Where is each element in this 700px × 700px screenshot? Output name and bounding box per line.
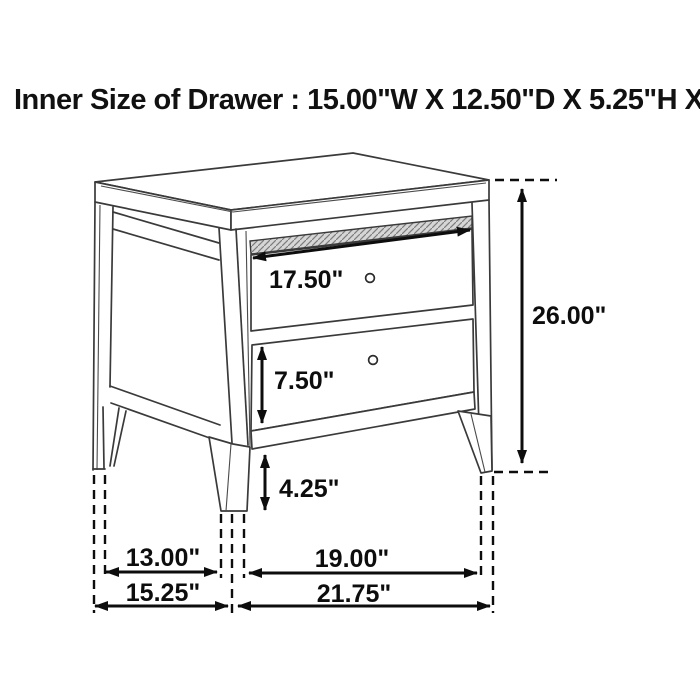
drawer-1-knob: [366, 274, 375, 283]
front-left-post: [219, 228, 250, 446]
left-leg-inner-edge: [103, 407, 104, 468]
front-right-leg-shape: [458, 411, 492, 473]
label-leg-height: 4.25": [279, 475, 340, 503]
left-stile-inner-edge: [110, 207, 113, 387]
label-drawer-width: 17.50": [269, 266, 343, 294]
back-left-leg-taper-2: [114, 411, 126, 466]
post-left-edge: [219, 228, 232, 443]
nightstand-dimension-diagram: 17.50" 26.00" 7.50" 4.25" 13.00" 19.00" …: [0, 0, 700, 700]
side-top-rail-lower: [113, 229, 219, 260]
diagram-canvas: Inner Size of Drawer : 15.00"W X 12.50"D…: [0, 0, 700, 700]
label-front-leg-span: 19.00": [315, 545, 389, 573]
left-stile-outer-edge: [93, 202, 95, 470]
back-left-leg: [110, 408, 126, 466]
drawer-stack: [250, 216, 475, 449]
label-side-leg-span: 13.00": [126, 544, 200, 572]
side-bottom-rail-lower: [111, 403, 221, 442]
left-leg: [93, 407, 105, 469]
label-overall-height: 26.00": [532, 302, 606, 330]
nightstand-drawing: [93, 153, 492, 511]
front-right-leg: [458, 411, 492, 473]
label-overall-width: 21.75": [317, 580, 391, 608]
label-overall-depth: 15.25": [126, 579, 200, 607]
left-stile-corner-line: [97, 205, 100, 470]
label-bottom-drawer-height: 7.50": [274, 367, 335, 395]
left-side-panel: [93, 202, 221, 470]
front-left-leg: [209, 437, 250, 511]
back-left-leg-taper-1: [110, 408, 119, 466]
front-left-leg-shape: [209, 437, 250, 511]
drawer-2-knob: [369, 356, 378, 365]
tabletop: [95, 153, 489, 230]
side-bottom-rail-upper: [110, 386, 220, 425]
